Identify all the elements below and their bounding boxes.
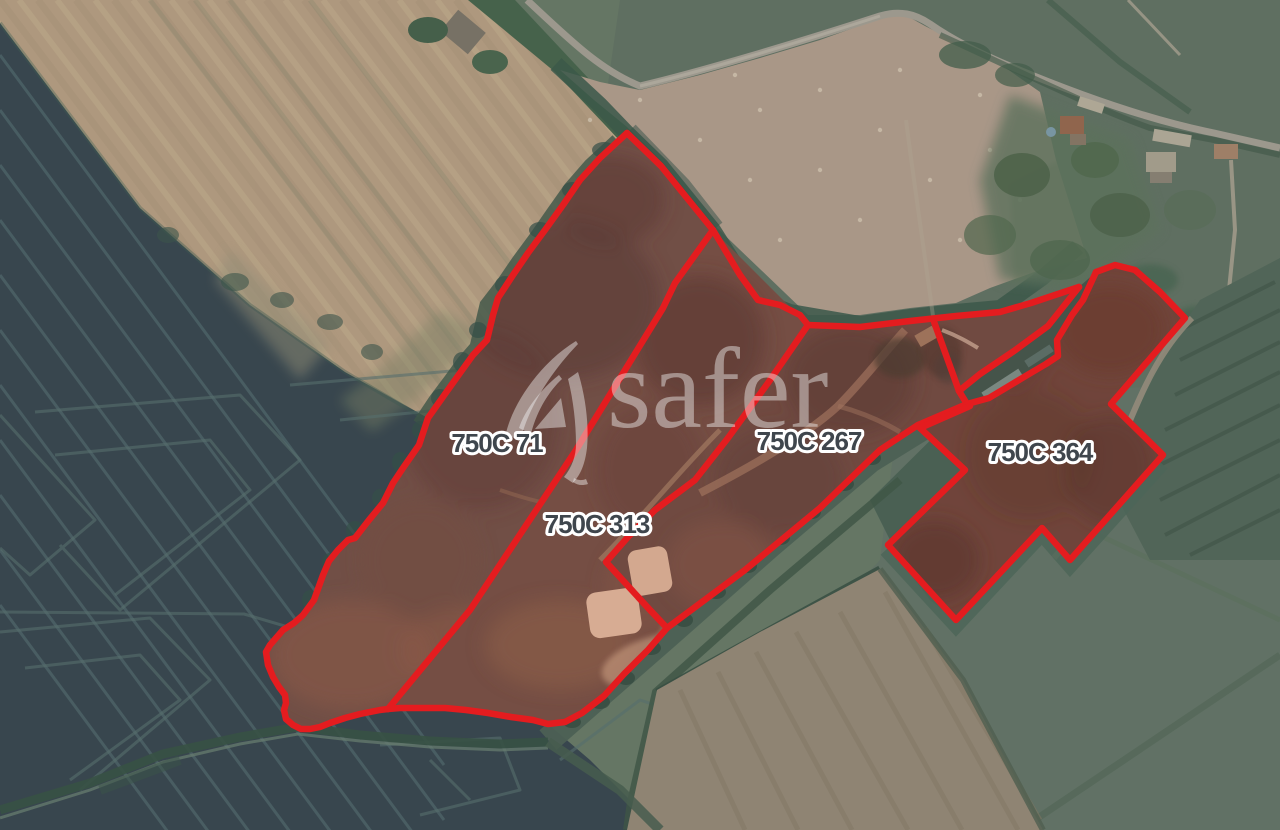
svg-text:750C 364: 750C 364 bbox=[988, 437, 1094, 467]
svg-text:750C 313: 750C 313 bbox=[545, 509, 650, 539]
svg-text:750C 267: 750C 267 bbox=[757, 426, 862, 456]
svg-text:750C 71: 750C 71 bbox=[451, 428, 543, 458]
